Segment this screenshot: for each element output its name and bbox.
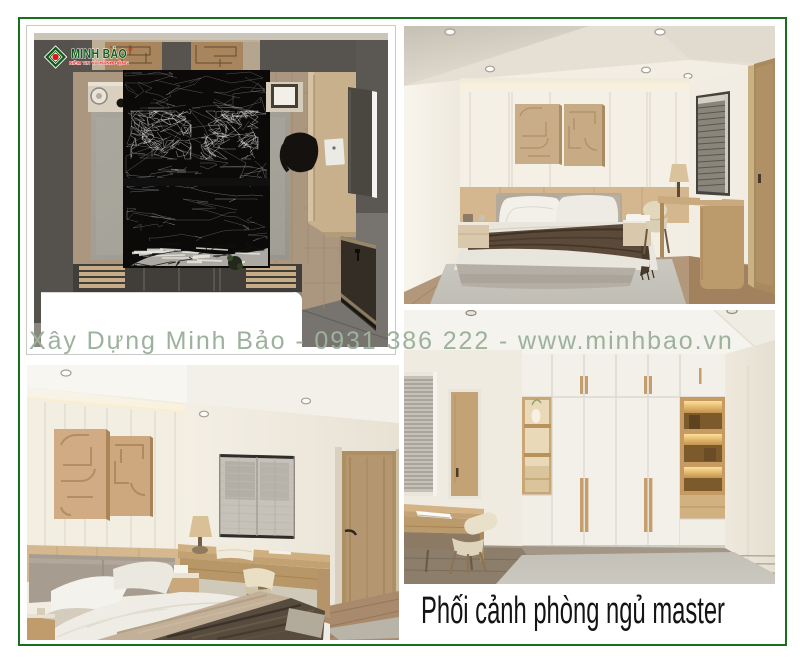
svg-text:NIỀM TIN VÀ HÀNH ĐỘNG: NIỀM TIN VÀ HÀNH ĐỘNG bbox=[69, 59, 129, 66]
svg-text:MINH BẢO: MINH BẢO bbox=[71, 47, 127, 61]
svg-text:®: ® bbox=[129, 46, 133, 53]
